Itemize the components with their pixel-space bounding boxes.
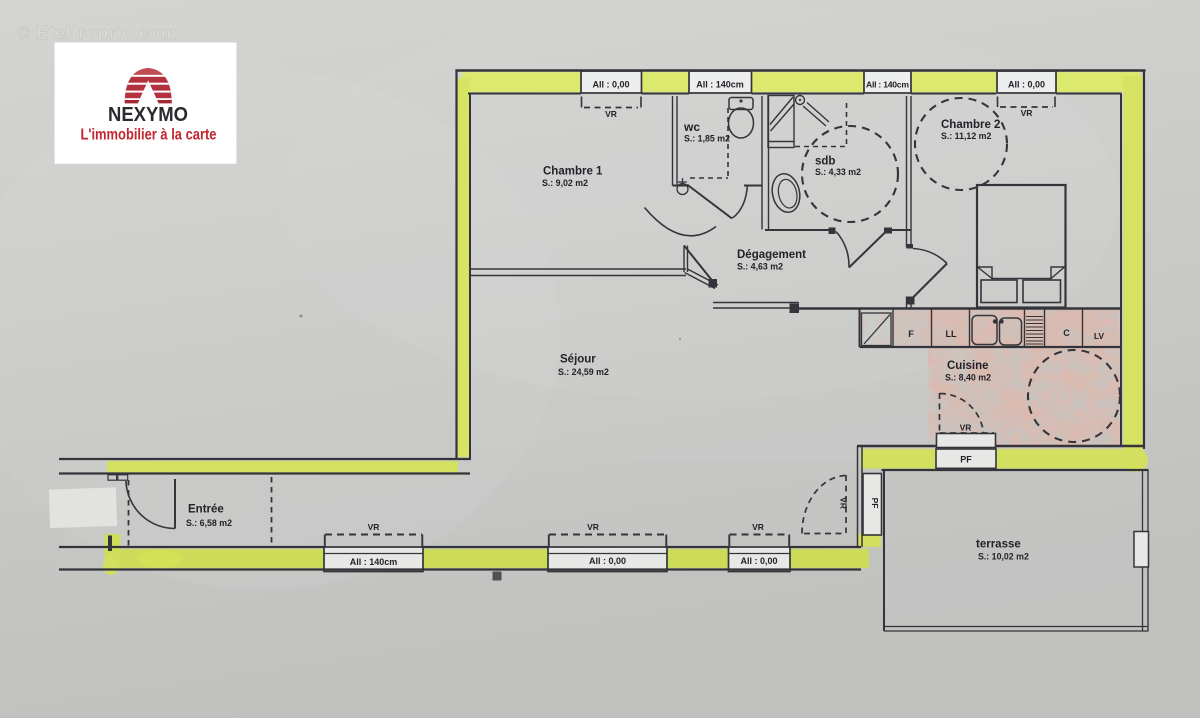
svg-text:S.: 4,33 m2: S.: 4,33 m2 (815, 167, 861, 177)
svg-text:VR: VR (752, 522, 764, 532)
svg-text:All : 0,00: All : 0,00 (592, 80, 629, 90)
svg-text:NEXYMO: NEXYMO (108, 104, 188, 126)
svg-text:All : 140cm: All : 140cm (866, 80, 909, 90)
svg-text:L'immobilier à la carte: L'immobilier à la carte (81, 127, 217, 144)
svg-text:S.: 4,63 m2: S.: 4,63 m2 (737, 262, 783, 272)
svg-text:Entrée: Entrée (188, 504, 224, 516)
svg-text:S.: 24,59 m2: S.: 24,59 m2 (558, 367, 609, 377)
svg-text:VR: VR (368, 522, 380, 532)
svg-text:Cuisine: Cuisine (947, 360, 989, 372)
svg-text:VR: VR (605, 109, 617, 119)
svg-text:All : 0,00: All : 0,00 (740, 556, 777, 566)
svg-text:S.: 1,85 m2: S.: 1,85 m2 (684, 134, 730, 144)
svg-text:Chambre 2: Chambre 2 (941, 119, 1000, 131)
svg-text:C: C (1063, 328, 1070, 338)
svg-text:S.: 10,02 m2: S.: 10,02 m2 (978, 552, 1029, 562)
svg-text:terrasse: terrasse (976, 539, 1021, 551)
svg-text:VR: VR (960, 423, 972, 433)
svg-text:sdb: sdb (815, 156, 835, 168)
svg-text:LL: LL (946, 329, 957, 339)
svg-text:VR: VR (1021, 108, 1033, 118)
svg-text:Chambre 1: Chambre 1 (543, 166, 603, 178)
svg-text:wc: wc (683, 120, 700, 134)
svg-text:Séjour: Séjour (560, 354, 596, 366)
svg-text:S.: 11,12 m2: S.: 11,12 m2 (941, 131, 991, 141)
svg-text:Dégagement: Dégagement (737, 249, 806, 261)
svg-text:All : 140cm: All : 140cm (696, 80, 744, 90)
svg-text:All : 0,00: All : 0,00 (589, 556, 626, 566)
svg-text:VR: VR (839, 497, 849, 509)
svg-text:PF: PF (960, 455, 972, 465)
svg-text:S.: 6,58 m2: S.: 6,58 m2 (186, 518, 232, 528)
svg-text:LV: LV (1094, 331, 1105, 341)
svg-text:PF: PF (870, 498, 880, 509)
svg-text:All : 0,00: All : 0,00 (1008, 80, 1045, 90)
svg-text:F: F (908, 329, 914, 339)
svg-text:VR: VR (587, 522, 599, 532)
svg-text:S.: 9,02 m2: S.: 9,02 m2 (542, 178, 588, 188)
svg-text:© EteProprio.com: © EteProprio.com (17, 23, 177, 43)
svg-text:S.: 8,40 m2: S.: 8,40 m2 (945, 373, 991, 383)
svg-text:All : 140cm: All : 140cm (350, 557, 398, 567)
